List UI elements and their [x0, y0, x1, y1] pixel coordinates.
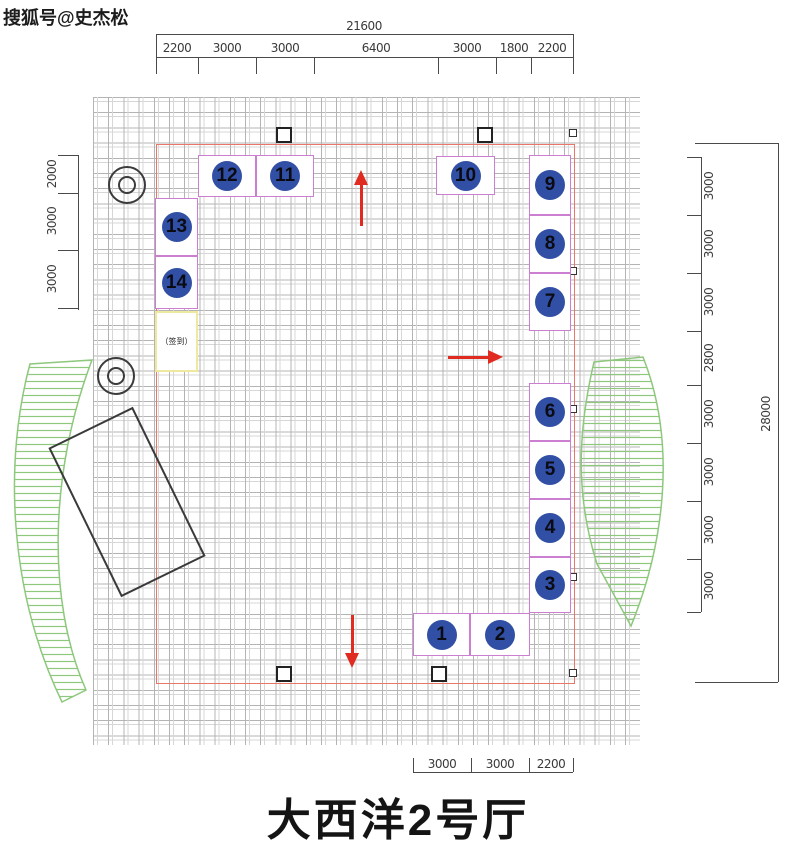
left-curtain-arc [14, 360, 92, 702]
booth-number-badge: 13 [162, 212, 192, 242]
dim-tick [687, 612, 701, 613]
column-circle-inner [107, 367, 125, 385]
sign-in-booth: （签到） [155, 311, 198, 372]
dim-tick [58, 250, 78, 251]
dim-tick [198, 57, 199, 74]
booth-5: 5 [529, 441, 571, 499]
dim-label: 2800 [702, 344, 716, 373]
dim-label: 3000 [45, 265, 59, 294]
dim-label-total-top: 21600 [346, 19, 382, 33]
booth-6: 6 [529, 383, 571, 441]
column-circle-inner [118, 176, 136, 194]
booth-11: 11 [256, 155, 314, 197]
dim-tick [695, 143, 778, 144]
booth-number-badge: 1 [427, 620, 457, 650]
right-arrow-icon [488, 350, 503, 364]
dim-line [78, 155, 79, 310]
sign-in-label: （签到） [161, 336, 193, 347]
dim-tick [687, 273, 701, 274]
dim-label: 2200 [537, 757, 566, 771]
dim-tick [695, 682, 778, 683]
hall-boundary [156, 144, 575, 684]
booth-number-badge: 8 [535, 229, 565, 259]
booth-4: 4 [529, 499, 571, 557]
dim-label: 2200 [163, 41, 192, 55]
dim-tick [58, 155, 78, 156]
booth-9: 9 [529, 155, 571, 215]
dim-label: 3000 [271, 41, 300, 55]
booth-12: 12 [198, 155, 256, 197]
dim-label: 3000 [702, 288, 716, 317]
dim-line [413, 772, 573, 773]
dim-tick [314, 57, 315, 74]
dim-line [778, 143, 779, 682]
dim-tick [573, 57, 574, 74]
dim-label: 3000 [702, 516, 716, 545]
booth-number-badge: 5 [535, 455, 565, 485]
wall-outlet-square [569, 669, 577, 677]
dim-tick [687, 443, 701, 444]
dim-tick [529, 758, 530, 772]
up-arrow-icon [354, 170, 368, 185]
dim-label: 3000 [213, 41, 242, 55]
column-square [276, 666, 292, 682]
dim-line [156, 57, 573, 58]
dim-tick [687, 157, 701, 158]
floor-plan-canvas: 搜狐号@史杰松 1 2 3 4 5 6 7 8 9 10 11 12 13 14… [0, 0, 796, 862]
dim-tick [156, 57, 157, 74]
dim-tick [531, 57, 532, 74]
dim-tick [687, 385, 701, 386]
booth-7: 7 [529, 273, 571, 331]
booth-1: 1 [413, 613, 470, 656]
column-square [276, 127, 292, 143]
dim-tick [687, 331, 701, 332]
up-arrow-shaft [360, 184, 363, 226]
column-square [477, 127, 493, 143]
booth-number-badge: 7 [535, 287, 565, 317]
booth-2: 2 [470, 613, 530, 656]
dim-tick [58, 308, 78, 309]
dim-tick [687, 215, 701, 216]
dim-label: 3000 [45, 207, 59, 236]
right-curtain-arc [581, 357, 663, 626]
dim-label: 3000 [486, 757, 515, 771]
booth-14: 14 [155, 256, 198, 309]
dim-tick [156, 34, 157, 57]
dim-tick [58, 193, 78, 194]
right-arrow-shaft [448, 356, 490, 359]
down-arrow-shaft [351, 615, 354, 655]
dim-label: 3000 [702, 230, 716, 259]
hall-title: 大西洋2号厅 [267, 784, 529, 848]
booth-13: 13 [155, 198, 198, 256]
booth-number-badge: 10 [451, 161, 481, 191]
dim-label: 1800 [500, 41, 529, 55]
dim-tick [573, 758, 574, 772]
dim-tick [687, 559, 701, 560]
dim-label: 3000 [702, 572, 716, 601]
booth-number-badge: 6 [535, 397, 565, 427]
dim-label: 3000 [453, 41, 482, 55]
booth-number-badge: 2 [485, 620, 515, 650]
booth-number-badge: 9 [535, 170, 565, 200]
dim-tick [256, 57, 257, 74]
column-square [431, 666, 447, 682]
booth-10: 10 [436, 156, 495, 195]
booth-number-badge: 11 [270, 161, 300, 191]
booth-number-badge: 3 [535, 570, 565, 600]
dim-tick [573, 34, 574, 57]
dim-tick [413, 758, 414, 772]
dim-label-total-right: 28000 [759, 396, 773, 432]
booth-3: 3 [529, 557, 571, 613]
dim-tick [496, 57, 497, 74]
booth-8: 8 [529, 215, 571, 273]
dim-label: 3000 [428, 757, 457, 771]
dim-tick [438, 57, 439, 74]
dim-label: 3000 [702, 400, 716, 429]
down-arrow-icon [345, 653, 359, 668]
dim-label: 3000 [702, 458, 716, 487]
wall-outlet-square [569, 129, 577, 137]
dim-label: 3000 [702, 172, 716, 201]
dim-tick [687, 501, 701, 502]
booth-number-badge: 4 [535, 513, 565, 543]
dim-line [156, 34, 573, 35]
booth-number-badge: 12 [212, 161, 242, 191]
dim-label: 2000 [45, 160, 59, 189]
booth-number-badge: 14 [162, 268, 192, 298]
dim-label: 6400 [362, 41, 391, 55]
dim-label: 2200 [538, 41, 567, 55]
dim-tick [471, 758, 472, 772]
